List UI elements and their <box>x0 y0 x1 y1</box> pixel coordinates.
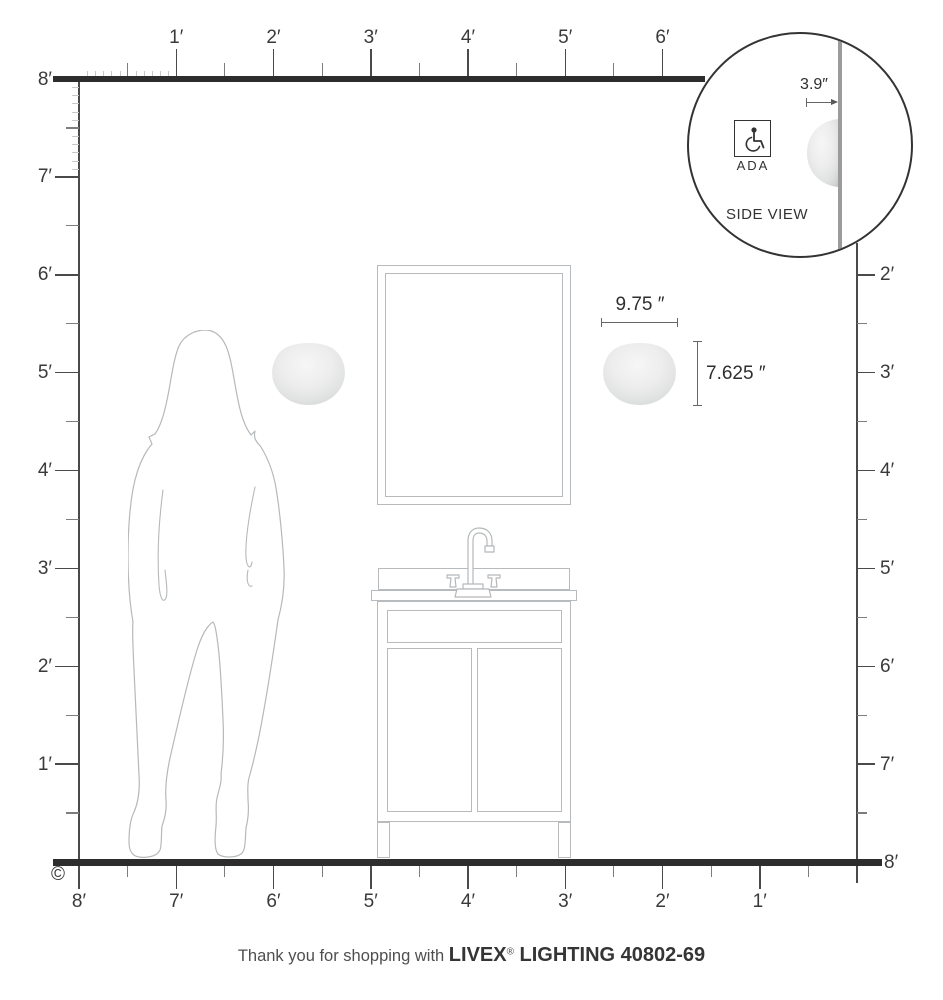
ruler-label: 3′ <box>550 891 580 913</box>
ruler-label: 3′ <box>10 558 52 580</box>
ruler-label: 1′ <box>745 891 775 913</box>
ruler-label: 1′ <box>161 27 191 49</box>
ruler-label: 5′ <box>880 558 916 580</box>
ruler-half-tick <box>66 812 79 813</box>
ruler-label: 2′ <box>10 656 52 678</box>
ruler-label: 4′ <box>453 27 483 49</box>
left-ruler-line <box>78 76 80 887</box>
ruler-half-tick <box>613 866 614 877</box>
ruler-label: 6′ <box>648 27 678 49</box>
ruler-half-tick <box>516 866 517 877</box>
ruler-half-tick <box>516 63 517 76</box>
inset-depth-label: 3.9″ <box>789 76 839 94</box>
ruler-tick <box>662 866 664 889</box>
ruler-label: 7′ <box>161 891 191 913</box>
side-view-caption: SIDE VIEW <box>702 206 832 223</box>
ruler-tick <box>55 470 79 472</box>
human-silhouette <box>128 330 286 860</box>
ruler-label: 5′ <box>550 27 580 49</box>
side-view-inset: 3.9″ ADA SIDE VIEW <box>687 32 913 258</box>
side-view-sconce <box>804 118 838 188</box>
sconce-width-dimline <box>601 322 678 323</box>
floor-line <box>53 859 882 866</box>
ruler-tick <box>55 666 79 668</box>
ruler-tick <box>273 866 275 889</box>
ruler-tick <box>78 866 80 889</box>
ruler-half-tick <box>857 812 867 813</box>
ruler-tick <box>857 763 875 765</box>
ruler-label: 6′ <box>880 656 916 678</box>
ruler-tick <box>857 470 875 472</box>
ruler-tick <box>55 568 79 570</box>
registered-mark: ® <box>507 947 514 958</box>
ruler-inch-tick <box>72 112 79 113</box>
ruler-tick <box>55 372 79 374</box>
ruler-tick <box>273 49 275 76</box>
ruler-label: 2′ <box>259 27 289 49</box>
ruler-half-tick <box>127 63 128 76</box>
ruler-inch-tick <box>72 161 79 162</box>
footer-model-number: LIGHTING 40802-69 <box>514 944 705 966</box>
ruler-tick <box>857 568 875 570</box>
ruler-tick <box>176 866 178 889</box>
ruler-tick <box>370 49 372 76</box>
ruler-tick <box>467 49 469 76</box>
ruler-half-tick <box>808 866 809 877</box>
ruler-inch-tick <box>72 136 79 137</box>
ruler-inch-tick <box>72 87 79 88</box>
ruler-tick <box>55 176 79 178</box>
ruler-tick <box>55 274 79 276</box>
ruler-half-tick <box>857 519 867 520</box>
ruler-half-tick <box>419 63 420 76</box>
sconce-height-label: 7.625 ″ <box>706 363 766 385</box>
copyright-symbol: © <box>51 864 65 886</box>
ruler-inch-tick <box>72 169 79 170</box>
ruler-half-tick <box>66 519 79 520</box>
ruler-label: 3′ <box>356 27 386 49</box>
ruler-tick <box>565 49 567 76</box>
sconce-height-dimline <box>697 341 698 406</box>
ruler-tick <box>662 49 664 76</box>
ruler-label: 6′ <box>259 891 289 913</box>
ruler-half-tick <box>224 866 225 877</box>
ruler-half-tick <box>66 617 79 618</box>
dim-endtick <box>806 98 807 107</box>
ruler-tick <box>370 866 372 889</box>
ruler-tick <box>55 763 79 765</box>
ruler-half-tick <box>857 421 867 422</box>
vanity-leg-left <box>377 822 390 858</box>
ruler-tick <box>176 49 178 76</box>
ruler-half-tick <box>711 866 712 877</box>
ruler-label: 7′ <box>880 754 916 776</box>
wall-sconce-right <box>601 341 678 407</box>
vanity-door-right <box>477 648 562 812</box>
mirror-glass <box>385 273 563 497</box>
ruler-label: 7′ <box>10 166 52 188</box>
ruler-label: 4′ <box>880 460 916 482</box>
ruler-tick <box>565 866 567 889</box>
ruler-half-tick <box>857 617 867 618</box>
ruler-label: 8′ <box>10 69 52 91</box>
ruler-tick <box>857 274 875 276</box>
ruler-tick <box>759 866 761 889</box>
wheelchair-icon <box>740 126 766 152</box>
dim-endtick <box>677 318 678 327</box>
ruler-half-tick <box>66 127 79 128</box>
ruler-label: 6′ <box>10 264 52 286</box>
inset-dimline <box>806 102 833 103</box>
ruler-label: 5′ <box>10 362 52 384</box>
ada-label: ADA <box>730 158 776 173</box>
ruler-half-tick <box>127 866 128 877</box>
ruler-half-tick <box>322 63 323 76</box>
ruler-half-tick <box>224 63 225 76</box>
dim-endtick <box>693 341 702 342</box>
ruler-tick <box>467 866 469 889</box>
vanity-drawer <box>387 610 562 643</box>
ruler-inch-tick <box>72 120 79 121</box>
ruler-half-tick <box>66 225 79 226</box>
ruler-label: 5′ <box>356 891 386 913</box>
dim-endtick <box>601 318 602 327</box>
ruler-half-tick <box>613 63 614 76</box>
ruler-label: 3′ <box>880 362 916 384</box>
wall-sconce-left <box>270 341 347 407</box>
footer-prefix: Thank you for shopping with <box>238 947 449 965</box>
faucet <box>440 525 510 600</box>
ceiling-line <box>53 76 705 82</box>
ruler-inch-tick <box>72 144 79 145</box>
ruler-half-tick <box>857 715 867 716</box>
dim-endtick <box>693 405 702 406</box>
ruler-half-tick <box>66 715 79 716</box>
ruler-half-tick <box>419 866 420 877</box>
ruler-label: 4′ <box>10 460 52 482</box>
ruler-label: 8′ <box>884 852 920 874</box>
ruler-inch-tick <box>72 152 79 153</box>
ruler-half-tick <box>322 866 323 877</box>
ruler-inch-tick <box>72 95 79 96</box>
footer: Thank you for shopping with LIVEX® LIGHT… <box>0 944 943 967</box>
ada-compliance-box <box>734 120 771 157</box>
ruler-inch-tick <box>72 103 79 104</box>
ruler-tick <box>857 372 875 374</box>
ruler-label: 4′ <box>453 891 483 913</box>
sconce-width-label: 9.75 ″ <box>595 294 685 316</box>
ruler-label: 2′ <box>648 891 678 913</box>
vanity-leg-right <box>558 822 571 858</box>
ruler-tick <box>857 666 875 668</box>
ruler-half-tick <box>66 323 79 324</box>
ruler-half-tick <box>857 323 867 324</box>
right-ruler-line <box>856 243 858 883</box>
ruler-label: 8′ <box>64 891 94 913</box>
ruler-label: 1′ <box>10 754 52 776</box>
dimension-diagram: 1′2′3′4′5′6′8′7′6′5′4′3′2′1′2′3′4′5′6′7′… <box>0 0 943 1000</box>
ruler-label: 2′ <box>880 264 916 286</box>
inset-wall-line <box>838 34 842 256</box>
vanity-door-left <box>387 648 472 812</box>
ruler-half-tick <box>66 421 79 422</box>
footer-brand: LIVEX <box>449 944 507 966</box>
